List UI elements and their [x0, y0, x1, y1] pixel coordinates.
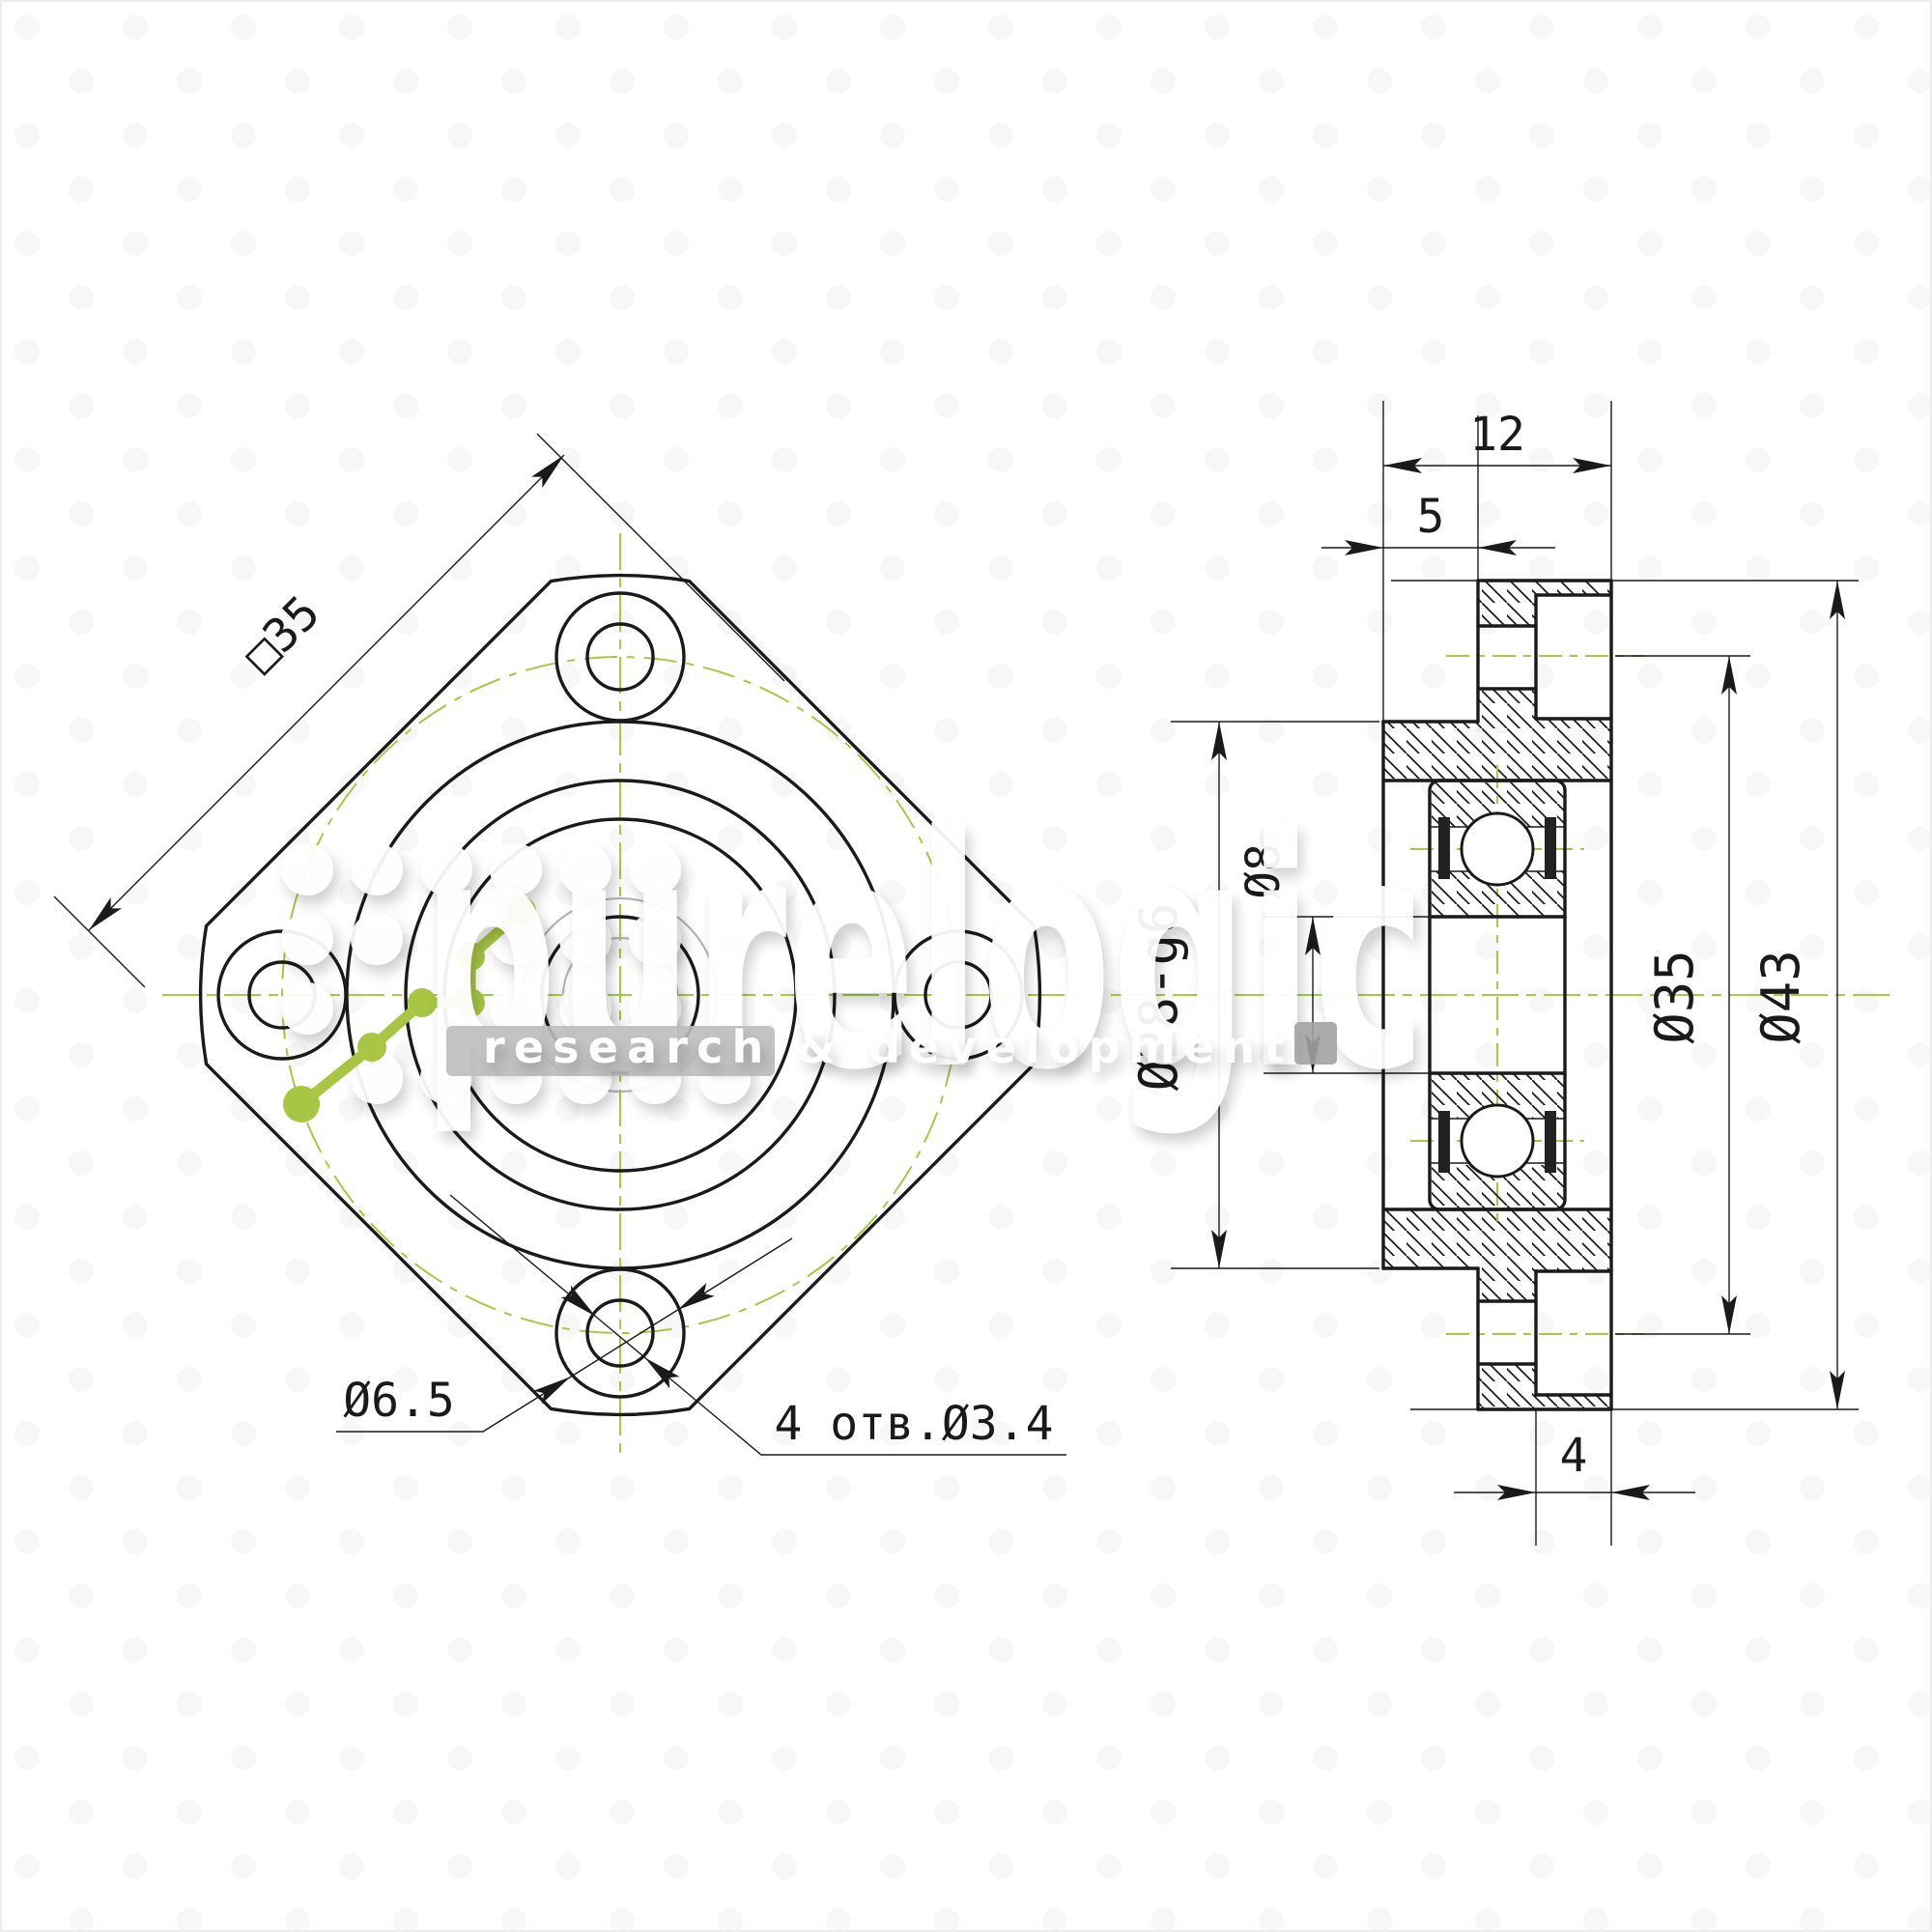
drawing-page: □35 Ø6.5 4 отв.Ø3.4 — [0, 0, 1932, 1932]
watermark-tagline-text: research & development — [483, 1021, 1285, 1073]
watermark-logo-square — [1294, 1022, 1337, 1065]
dim-bolt-holes-label: 4 отв.Ø3.4 — [775, 1397, 1054, 1451]
ball-top — [1462, 813, 1533, 885]
dim-counterbore-label: Ø6.5 — [343, 1374, 455, 1428]
watermark-brand-text: purelogic — [421, 769, 1426, 1140]
watermark: purelogic research & development — [281, 769, 1426, 1140]
dim-boss-protrusion-label: 5 — [1417, 490, 1445, 544]
seal-left-bottom — [1438, 1111, 1450, 1173]
seal-left-top — [1438, 817, 1450, 879]
technical-drawing: □35 Ø6.5 4 отв.Ø3.4 — [0, 0, 1932, 1932]
ball-bottom — [1462, 1105, 1533, 1177]
dim-counterbore-depth-label: 4 — [1560, 1429, 1588, 1483]
dim-flange-dia-label: Ø43 — [1750, 950, 1811, 1044]
seal-right-bottom — [1545, 1111, 1556, 1173]
seal-right-top — [1545, 817, 1556, 879]
dim-bolt-circle-label: Ø35 — [1644, 950, 1705, 1044]
